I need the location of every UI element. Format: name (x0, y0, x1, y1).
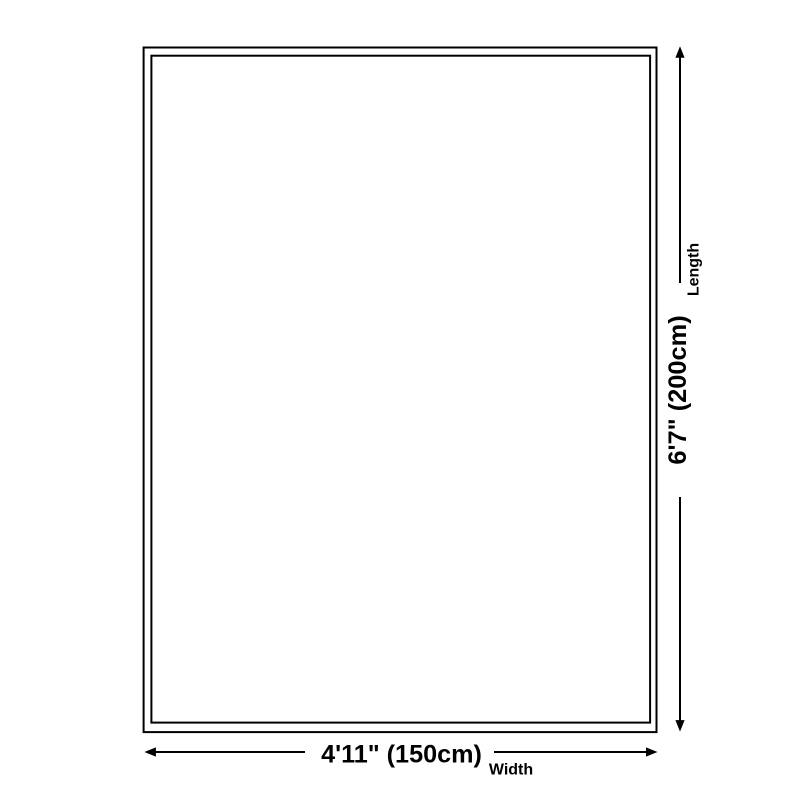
svg-text:6'7" (200cm): 6'7" (200cm) (664, 315, 692, 464)
svg-text:4'11" (150cm): 4'11" (150cm) (321, 741, 482, 769)
svg-text:Length: Length (686, 243, 703, 296)
svg-text:Width: Width (489, 762, 533, 779)
